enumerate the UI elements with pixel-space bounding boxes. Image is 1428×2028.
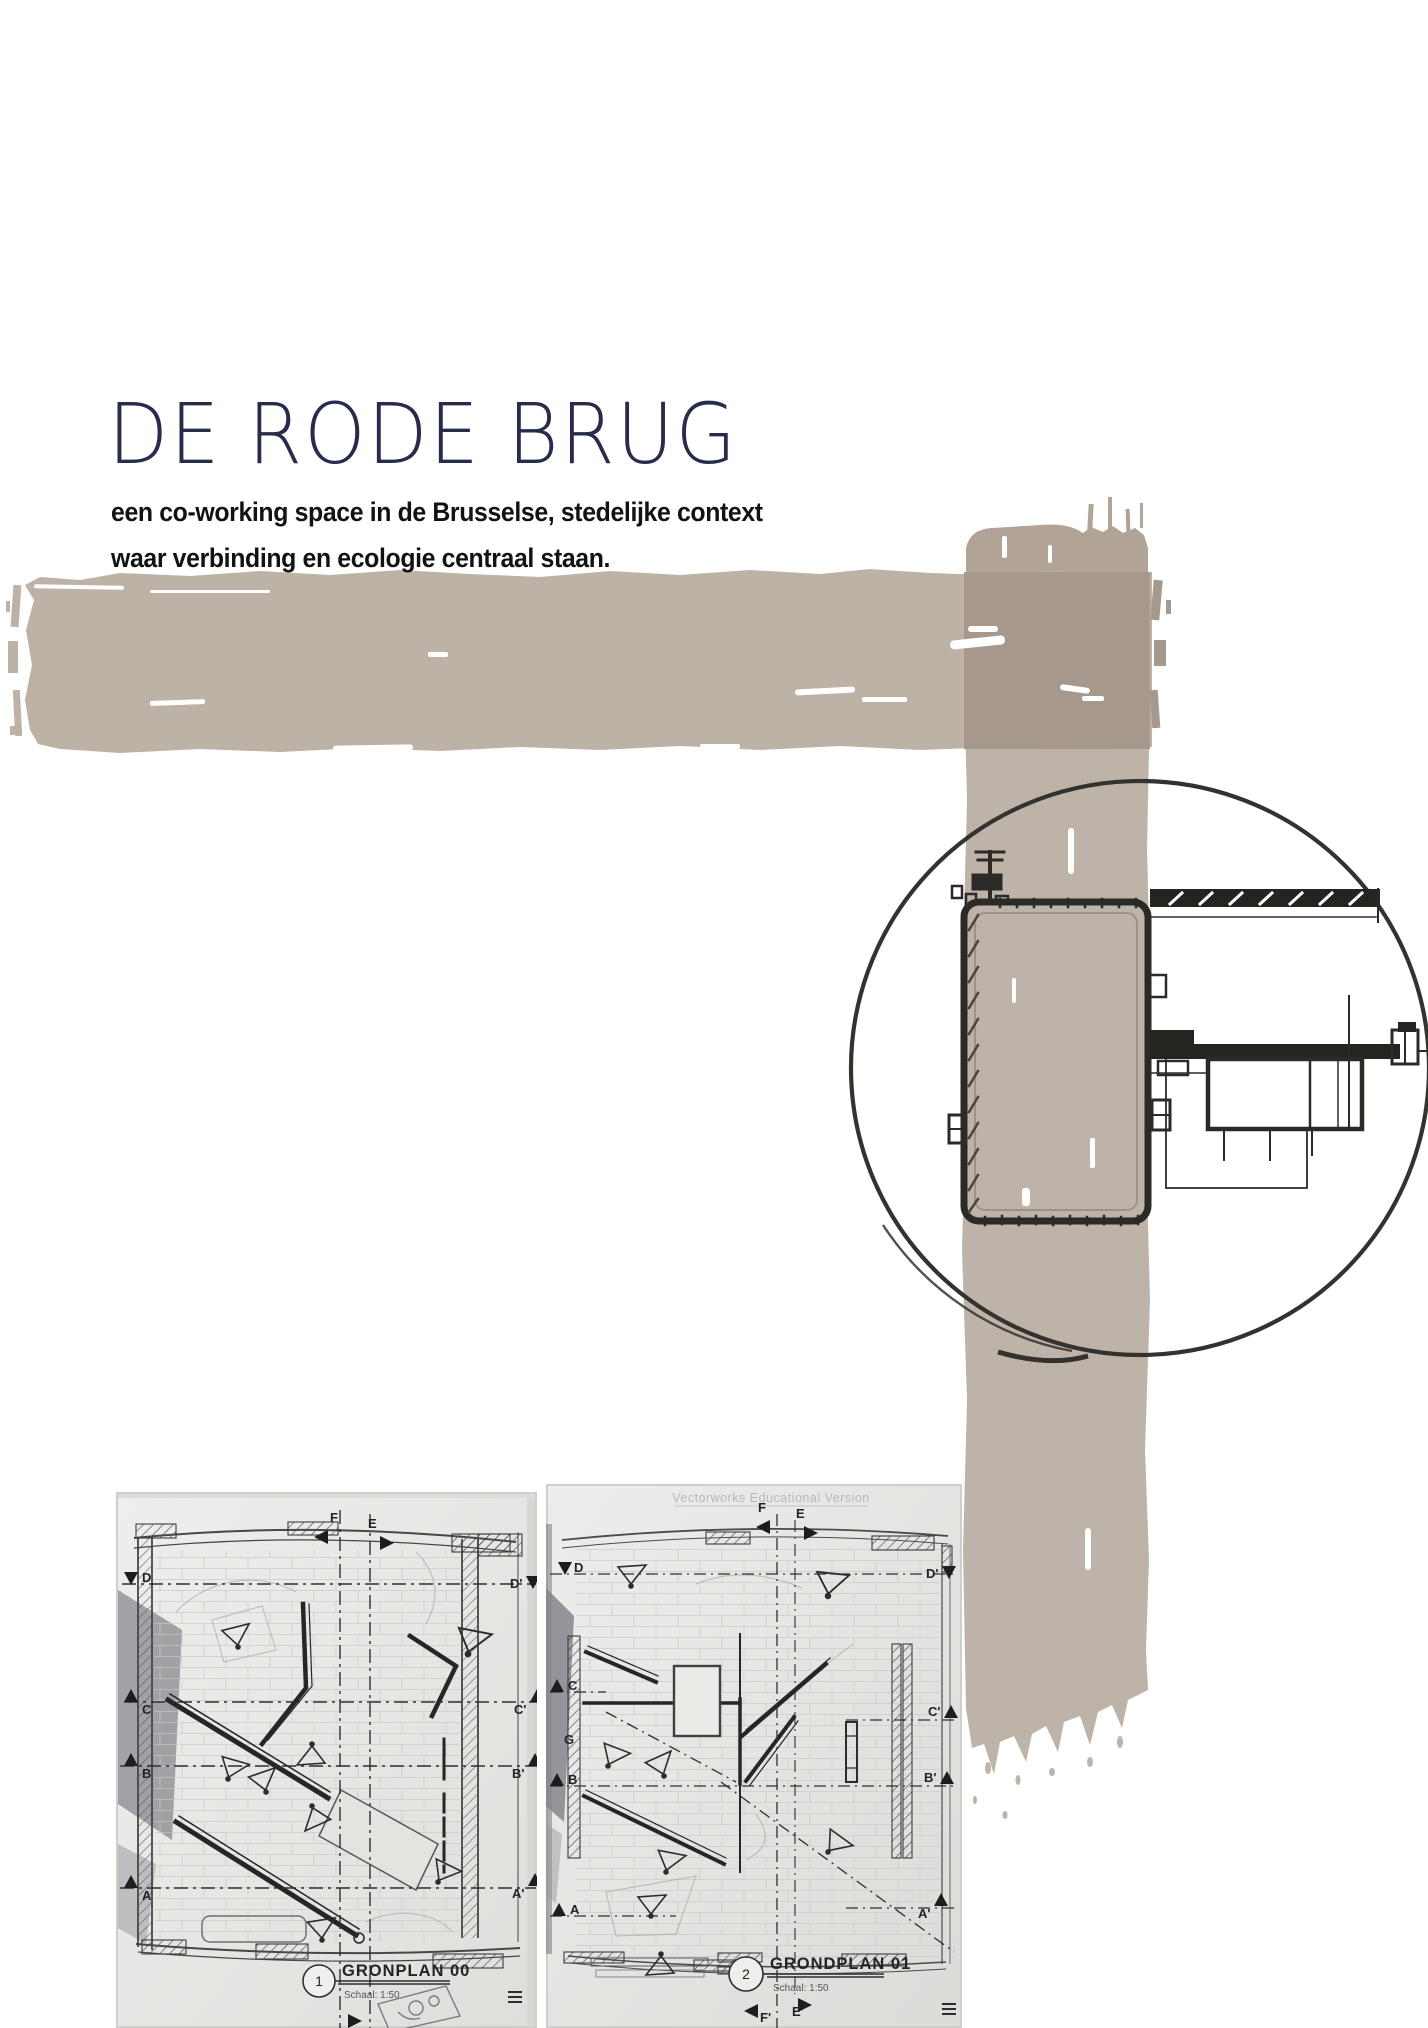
- section-marker-label: F: [330, 1510, 338, 1525]
- section-marker-label: C: [568, 1678, 578, 1693]
- section-marker-label: E: [368, 1516, 377, 1531]
- plan-number: 2: [742, 1966, 750, 1982]
- page-subtitle-line2: waar verbinding en ecologie centraal sta…: [111, 535, 763, 581]
- section-marker-label: B': [512, 1766, 524, 1781]
- section-marker-label: G: [564, 1732, 574, 1747]
- vectorworks-watermark: Vectorworks Educational Version: [672, 1491, 870, 1505]
- floorplan-photo-01: Vectorworks Educational Version: [546, 1484, 962, 2028]
- plan-title: GRONDPLAN 01: [770, 1955, 911, 1973]
- plan-number: 1: [315, 1973, 323, 1989]
- plan-title: GRONPLAN 00: [342, 1962, 470, 1980]
- section-marker-label: B: [568, 1772, 577, 1787]
- section-marker-label: F': [760, 2010, 771, 2025]
- page-title: DE RODE BRUG: [108, 392, 738, 476]
- section-marker-label: A': [918, 1906, 930, 1921]
- section-marker-label: A: [570, 1902, 580, 1917]
- window-frame-section-drawing: [949, 852, 1428, 1225]
- section-marker-label: D: [574, 1560, 583, 1575]
- page-subtitle-line1: een co-working space in de Brusselse, st…: [111, 489, 763, 535]
- section-marker-label: E: [796, 1506, 805, 1521]
- section-marker-label: A: [142, 1888, 152, 1903]
- section-marker-label: D': [510, 1576, 522, 1591]
- section-marker-label: C': [928, 1704, 940, 1719]
- section-marker-label: E': [792, 2004, 804, 2019]
- section-marker-label: C': [514, 1702, 526, 1717]
- section-marker-label: D': [926, 1566, 938, 1581]
- page-subtitle: een co-working space in de Brusselse, st…: [111, 489, 763, 581]
- section-marker-label: B': [924, 1770, 936, 1785]
- section-marker-label: A': [512, 1886, 524, 1901]
- detail-circle: [841, 771, 1428, 1365]
- section-marker-label: C: [142, 1702, 152, 1717]
- section-marker-label: F: [758, 1500, 766, 1515]
- section-marker-label: B: [142, 1766, 151, 1781]
- plan-scale: Schaal: 1:50: [344, 1990, 400, 2001]
- floorplan-photo-00: F E D C B A D' C' B' A' 1 GRONPLAN 00 Sc…: [116, 1492, 537, 2028]
- plan-scale: Schaal: 1:50: [773, 1983, 829, 1994]
- section-marker-label: D: [142, 1570, 151, 1585]
